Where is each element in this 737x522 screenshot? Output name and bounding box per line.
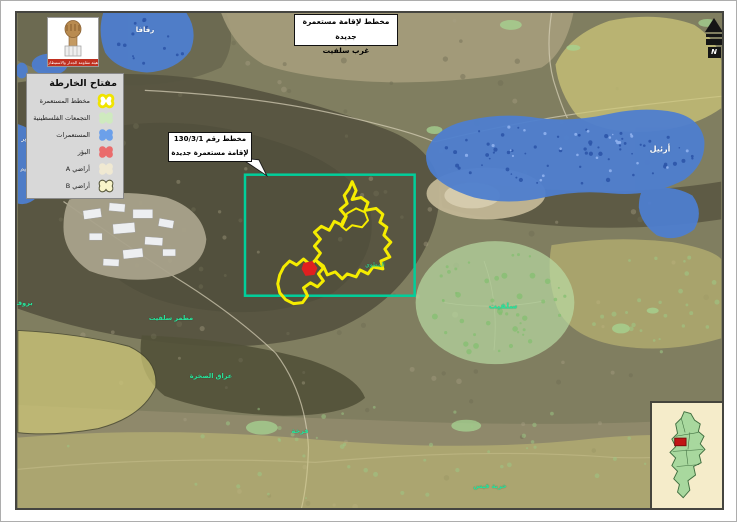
plan-callout-line2: لإقامة مستعمرة جديدة [169, 147, 251, 161]
salfit-community-area [416, 241, 575, 364]
satellite-map: رفافاأرئيلياكيرنوفيمسلفيتمطمر سلفيتعراق … [15, 11, 724, 510]
north-arrow: N [701, 18, 724, 58]
map-title-line2: غرب سلفيت [295, 44, 397, 59]
north-arrow-head [705, 18, 723, 32]
legend-item-label: مخطط المستعمرة [40, 97, 90, 105]
organization-logo: هيئة مقاومة الجدار والاستيطان [47, 17, 99, 67]
legend-item-areas-a: أراضي A [32, 160, 118, 177]
legend-title: مفتاح الخارطة [33, 78, 117, 89]
legend-items: مخطط المستعمرة التجمعات الفلسطينية المست… [32, 92, 118, 194]
north-arrow-bar-thick [706, 39, 722, 45]
legend-item-label: أراضي A [66, 165, 90, 173]
fist-icon [48, 18, 98, 59]
plan-callout-line1: مخطط رقم 130/3/1 [169, 133, 251, 147]
legend-swatch [94, 144, 118, 160]
legend-item-label: المستعمرات [56, 131, 90, 139]
westbank-inset-map [650, 401, 724, 510]
map-title-box: مخطط لإقامة مستعمرة جديدة غرب سلفيت [294, 14, 398, 46]
legend-item-label: أراضي B [66, 182, 90, 190]
organization-name: هيئة مقاومة الجدار والاستيطان [48, 59, 98, 66]
plan-callout-box: مخطط رقم 130/3/1 لإقامة مستعمرة جديدة [168, 132, 252, 162]
map-sheet: رفافاأرئيلياكيرنوفيمسلفيتمطمر سلفيتعراق … [0, 0, 737, 522]
legend-item-label: التجمعات الفلسطينية [33, 114, 90, 122]
legend-swatch [94, 161, 118, 177]
legend-item-palestinian-communities: التجمعات الفلسطينية [32, 109, 118, 126]
legend-swatch [94, 110, 118, 126]
north-arrow-bar [706, 34, 722, 37]
area-b-bottomband [18, 432, 721, 508]
legend-swatch [94, 178, 118, 194]
legend-item-areas-b: أراضي B [32, 177, 118, 194]
location-marker [675, 438, 686, 446]
legend-swatch [94, 93, 118, 109]
map-title-line1: مخطط لإقامة مستعمرة جديدة [295, 15, 397, 44]
legend-item-settlement-plan: مخطط المستعمرة [32, 92, 118, 109]
legend-item-label: البؤر [78, 148, 90, 156]
westbank-shape [652, 403, 722, 510]
legend-item-settlements: المستعمرات [32, 126, 118, 143]
legend-item-outposts: البؤر [32, 143, 118, 160]
map-legend: مفتاح الخارطة مخطط المستعمرة التجمعات ال… [26, 73, 124, 199]
north-label: N [708, 47, 721, 58]
legend-swatch [94, 127, 118, 143]
